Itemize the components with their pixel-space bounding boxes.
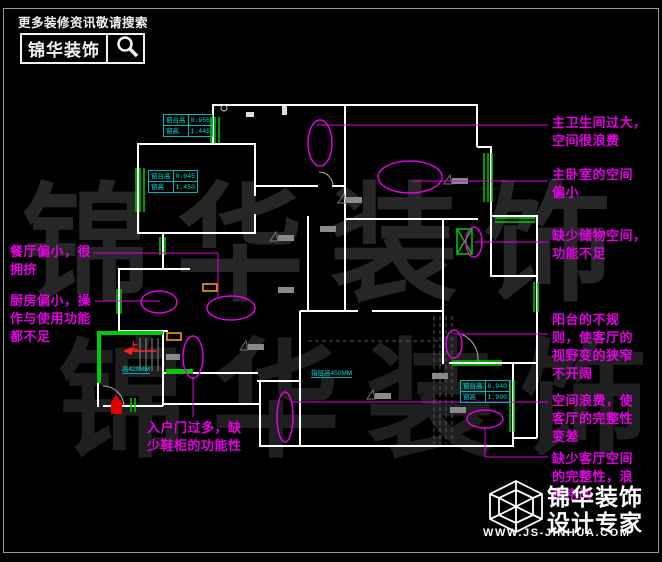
wt-label: 窗台高 [149,171,174,182]
window-height-table-1: 窗台高 0.955 窗高 1.445 [163,114,213,137]
footer-url: WWW.JS-JINHUA.COM [483,527,631,539]
annotation-line: 客厅的完整性 [552,410,633,428]
wt-label: 窗高 [164,126,189,137]
step-height-note: 高420MM [122,366,150,374]
search-icon-slot [108,35,142,62]
marker-dining [207,296,255,320]
annotation-line: 厨房偏小，操 [10,292,91,310]
annotation-master-bath: 主卫生间过大， 空间很浪费 [552,114,647,150]
marker-kitchen [141,291,177,313]
annotation-line: 少鞋柜的功能性 [147,437,242,455]
wt-label: 窗台高 [164,115,189,126]
marker-master-bedroom [378,161,442,193]
appliance-symbols [167,284,217,340]
annotation-master-bedroom: 主卧室的空间 偏小 [552,166,633,202]
wt-value: 1.900 [485,392,510,403]
window-height-table-3: 窗台高 0.940 窗高 1.900 [460,380,510,403]
annotation-line: 则，使客厅的 [552,329,633,347]
annotation-storage: 缺少储物空间， 功能不足 [552,227,647,263]
annotation-kitchen: 厨房偏小，操 作与使用功能 都不足 [10,292,91,346]
entry-alarm-symbol [111,395,122,414]
header-tagline: 更多装修资讯敬请搜索 [18,12,148,31]
annotation-dining: 餐厅偏小，很 拥挤 [10,243,91,279]
annotation-entry-door: 入户门过多，缺 少鞋柜的功能性 [147,419,242,455]
annotation-line: 功能不足 [552,245,647,263]
problem-markers-layer [141,120,503,442]
annotation-line: 主卫生间过大， [552,114,647,132]
annotation-line: 缺少客厅空间 [552,450,633,468]
header-logo-box: 锦华装饰 [20,33,145,64]
annotation-line: 缺少储物空间， [552,227,647,245]
annotation-line: 视野变的狭窄 [552,347,633,365]
wt-label: 窗高 [461,392,486,403]
annotation-line: 偏小 [552,184,633,202]
wt-label: 窗高 [149,182,174,193]
marker-wasted-strip [277,392,293,442]
annotation-line: 不开阔 [552,365,633,383]
door-leaf-tags [246,106,287,117]
annotation-line: 阳台的不规 [552,311,633,329]
annotation-line: 作与使用功能 [10,310,91,328]
stairs-up-label: 上 [129,339,138,352]
header-brand: 锦华装饰 [22,36,106,61]
construction-lines [308,316,452,444]
annotation-line: 空间很浪费 [552,132,647,150]
wt-value: 0.940 [485,381,510,392]
split-level-note: 错层高450MM [311,370,352,378]
wt-value: 0.955 [188,115,213,126]
wt-value: 0.945 [173,171,198,182]
annotation-line: 餐厅偏小，很 [10,243,91,261]
annotation-line: 都不足 [10,328,91,346]
annotation-balcony: 阳台的不规 则，使客厅的 视野变的狭窄 不开阔 [552,311,633,383]
annotation-wasted-space: 空间浪费，使 客厅的完整性 变差 [552,392,633,446]
annotation-line: 入户门过多，缺 [147,419,242,437]
wt-value: 1.450 [173,182,198,193]
annotation-line: 主卧室的空间 [552,166,633,184]
marker-master-bath [308,120,332,166]
footer-cube-logo [490,481,542,532]
window-height-table-2: 窗台高 0.945 窗高 1.450 [148,170,198,193]
annotation-line: 空间浪费，使 [552,392,633,410]
wt-label: 窗台高 [461,381,486,392]
cad-floorplan-poster: 锦华装饰 锦华装饰 [0,0,662,562]
marker-living-corner [467,410,503,428]
annotation-line: 变差 [552,428,633,446]
annotation-line: 拥挤 [10,261,91,279]
wt-value: 1.445 [188,126,213,137]
